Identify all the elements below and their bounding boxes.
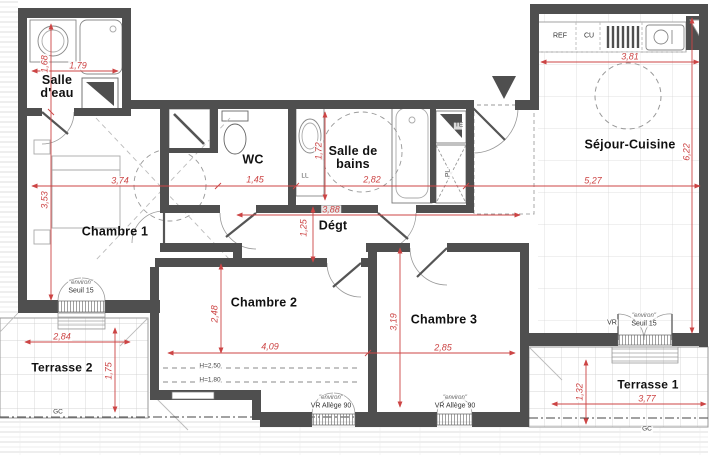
annot-gc-terrasse2: GC xyxy=(52,410,64,417)
wc-fixtures xyxy=(169,109,248,154)
room-label-terrasse-2: Terrasse 2 xyxy=(31,362,92,375)
annot-environ-sejour: "environ" xyxy=(631,313,657,319)
dim-terrasse2-height: 1,75 xyxy=(104,361,113,381)
annot-washing-machine: LL xyxy=(300,174,309,181)
room-label-terrasse-1: Terrasse 1 xyxy=(617,379,678,392)
room-label-chambre-1: Chambre 1 xyxy=(82,225,148,238)
room-label-degt: Dégt xyxy=(319,219,348,232)
dim-terrasse1-height: 1,32 xyxy=(575,382,584,402)
entrance-arrow-icon xyxy=(492,76,516,99)
dim-chambre2-height: 2,48 xyxy=(210,304,219,324)
annot-environ-chambre3: "environ" xyxy=(442,395,468,401)
dim-chambre1-width: 3,74 xyxy=(110,176,130,185)
door-leaf xyxy=(378,213,408,239)
annot-vr-allege-chambre3: VR Allège 90 xyxy=(434,402,476,409)
dim-cuisine-width: 3,81 xyxy=(620,52,640,61)
kitchen-sink-icon xyxy=(646,25,684,50)
annot-vr-sejour: VR xyxy=(606,319,618,326)
nightstand-icon xyxy=(34,230,50,244)
room-label-wc: WC xyxy=(242,153,263,166)
door-leaf xyxy=(333,263,361,287)
annot-cooking: CU xyxy=(583,32,595,39)
annot-gc-terrasse1: GC xyxy=(641,427,653,434)
annot-height-180: H=1.80 xyxy=(198,378,221,385)
room-label-sejour-cuisine: Séjour-Cuisine xyxy=(584,138,675,151)
dim-chambre1-height: 3,53 xyxy=(40,190,49,210)
height-limit-lines xyxy=(163,368,360,382)
room-label-chambre-2: Chambre 2 xyxy=(231,296,297,309)
floor-plan: Salle d'eau WC Salle de bains Séjour-Cui… xyxy=(0,0,720,455)
door-leaf xyxy=(226,213,256,237)
dim-chambre3-width: 2,85 xyxy=(433,343,453,352)
door-leaf xyxy=(417,248,447,277)
annot-pl-closet: PL xyxy=(446,168,453,178)
annot-te-closet: TE xyxy=(454,123,464,130)
annot-fridge: REF xyxy=(552,32,568,39)
terrace-2-area xyxy=(0,313,188,430)
room-label-chambre-3: Chambre 3 xyxy=(411,313,477,326)
annot-environ-chambre2: "environ" xyxy=(318,395,344,401)
toilet-tank xyxy=(222,111,248,121)
dim-salle-deau-width: 1,79 xyxy=(68,61,88,70)
dim-wc-width: 1,45 xyxy=(245,175,265,184)
room-label-salle-deau: Salle d'eau xyxy=(33,74,81,100)
nightstand-icon xyxy=(34,140,50,154)
annot-vr-allege-chambre2: VR Allège 90 xyxy=(310,402,352,409)
dim-sdb-height: 1,72 xyxy=(314,141,323,161)
annot-environ-chambre1: "environ" xyxy=(68,280,94,286)
dim-degt-height: 1,25 xyxy=(299,218,308,238)
entry-zone-outline xyxy=(474,112,534,214)
annot-seuil-sejour: Seuil 15 xyxy=(630,320,657,327)
dim-sdb-width: 2,82 xyxy=(362,175,382,184)
door-leaf xyxy=(42,112,68,134)
dim-degt-width: 3,88 xyxy=(321,205,341,214)
entrance-door-leaf xyxy=(473,108,505,140)
toilet-icon xyxy=(224,124,246,154)
dim-terrasse1-width: 3,77 xyxy=(637,394,657,403)
dim-terrasse2-width: 2,84 xyxy=(52,332,72,341)
bed-icon xyxy=(52,156,120,228)
annot-seuil-chambre1: Seuil 15 xyxy=(67,287,94,294)
dim-sejour-width: 5,27 xyxy=(583,176,603,185)
annot-height-250: H=2.50 xyxy=(198,364,221,371)
room-label-salle-de-bains: Salle de bains xyxy=(322,145,384,171)
dim-sejour-height: 6,22 xyxy=(682,142,691,162)
dim-chambre2-width: 4,09 xyxy=(260,342,280,351)
dim-chambre3-height: 3,19 xyxy=(389,312,398,332)
cooktop-icon xyxy=(608,26,638,48)
dim-salle-deau-height: 1,68 xyxy=(40,54,49,74)
